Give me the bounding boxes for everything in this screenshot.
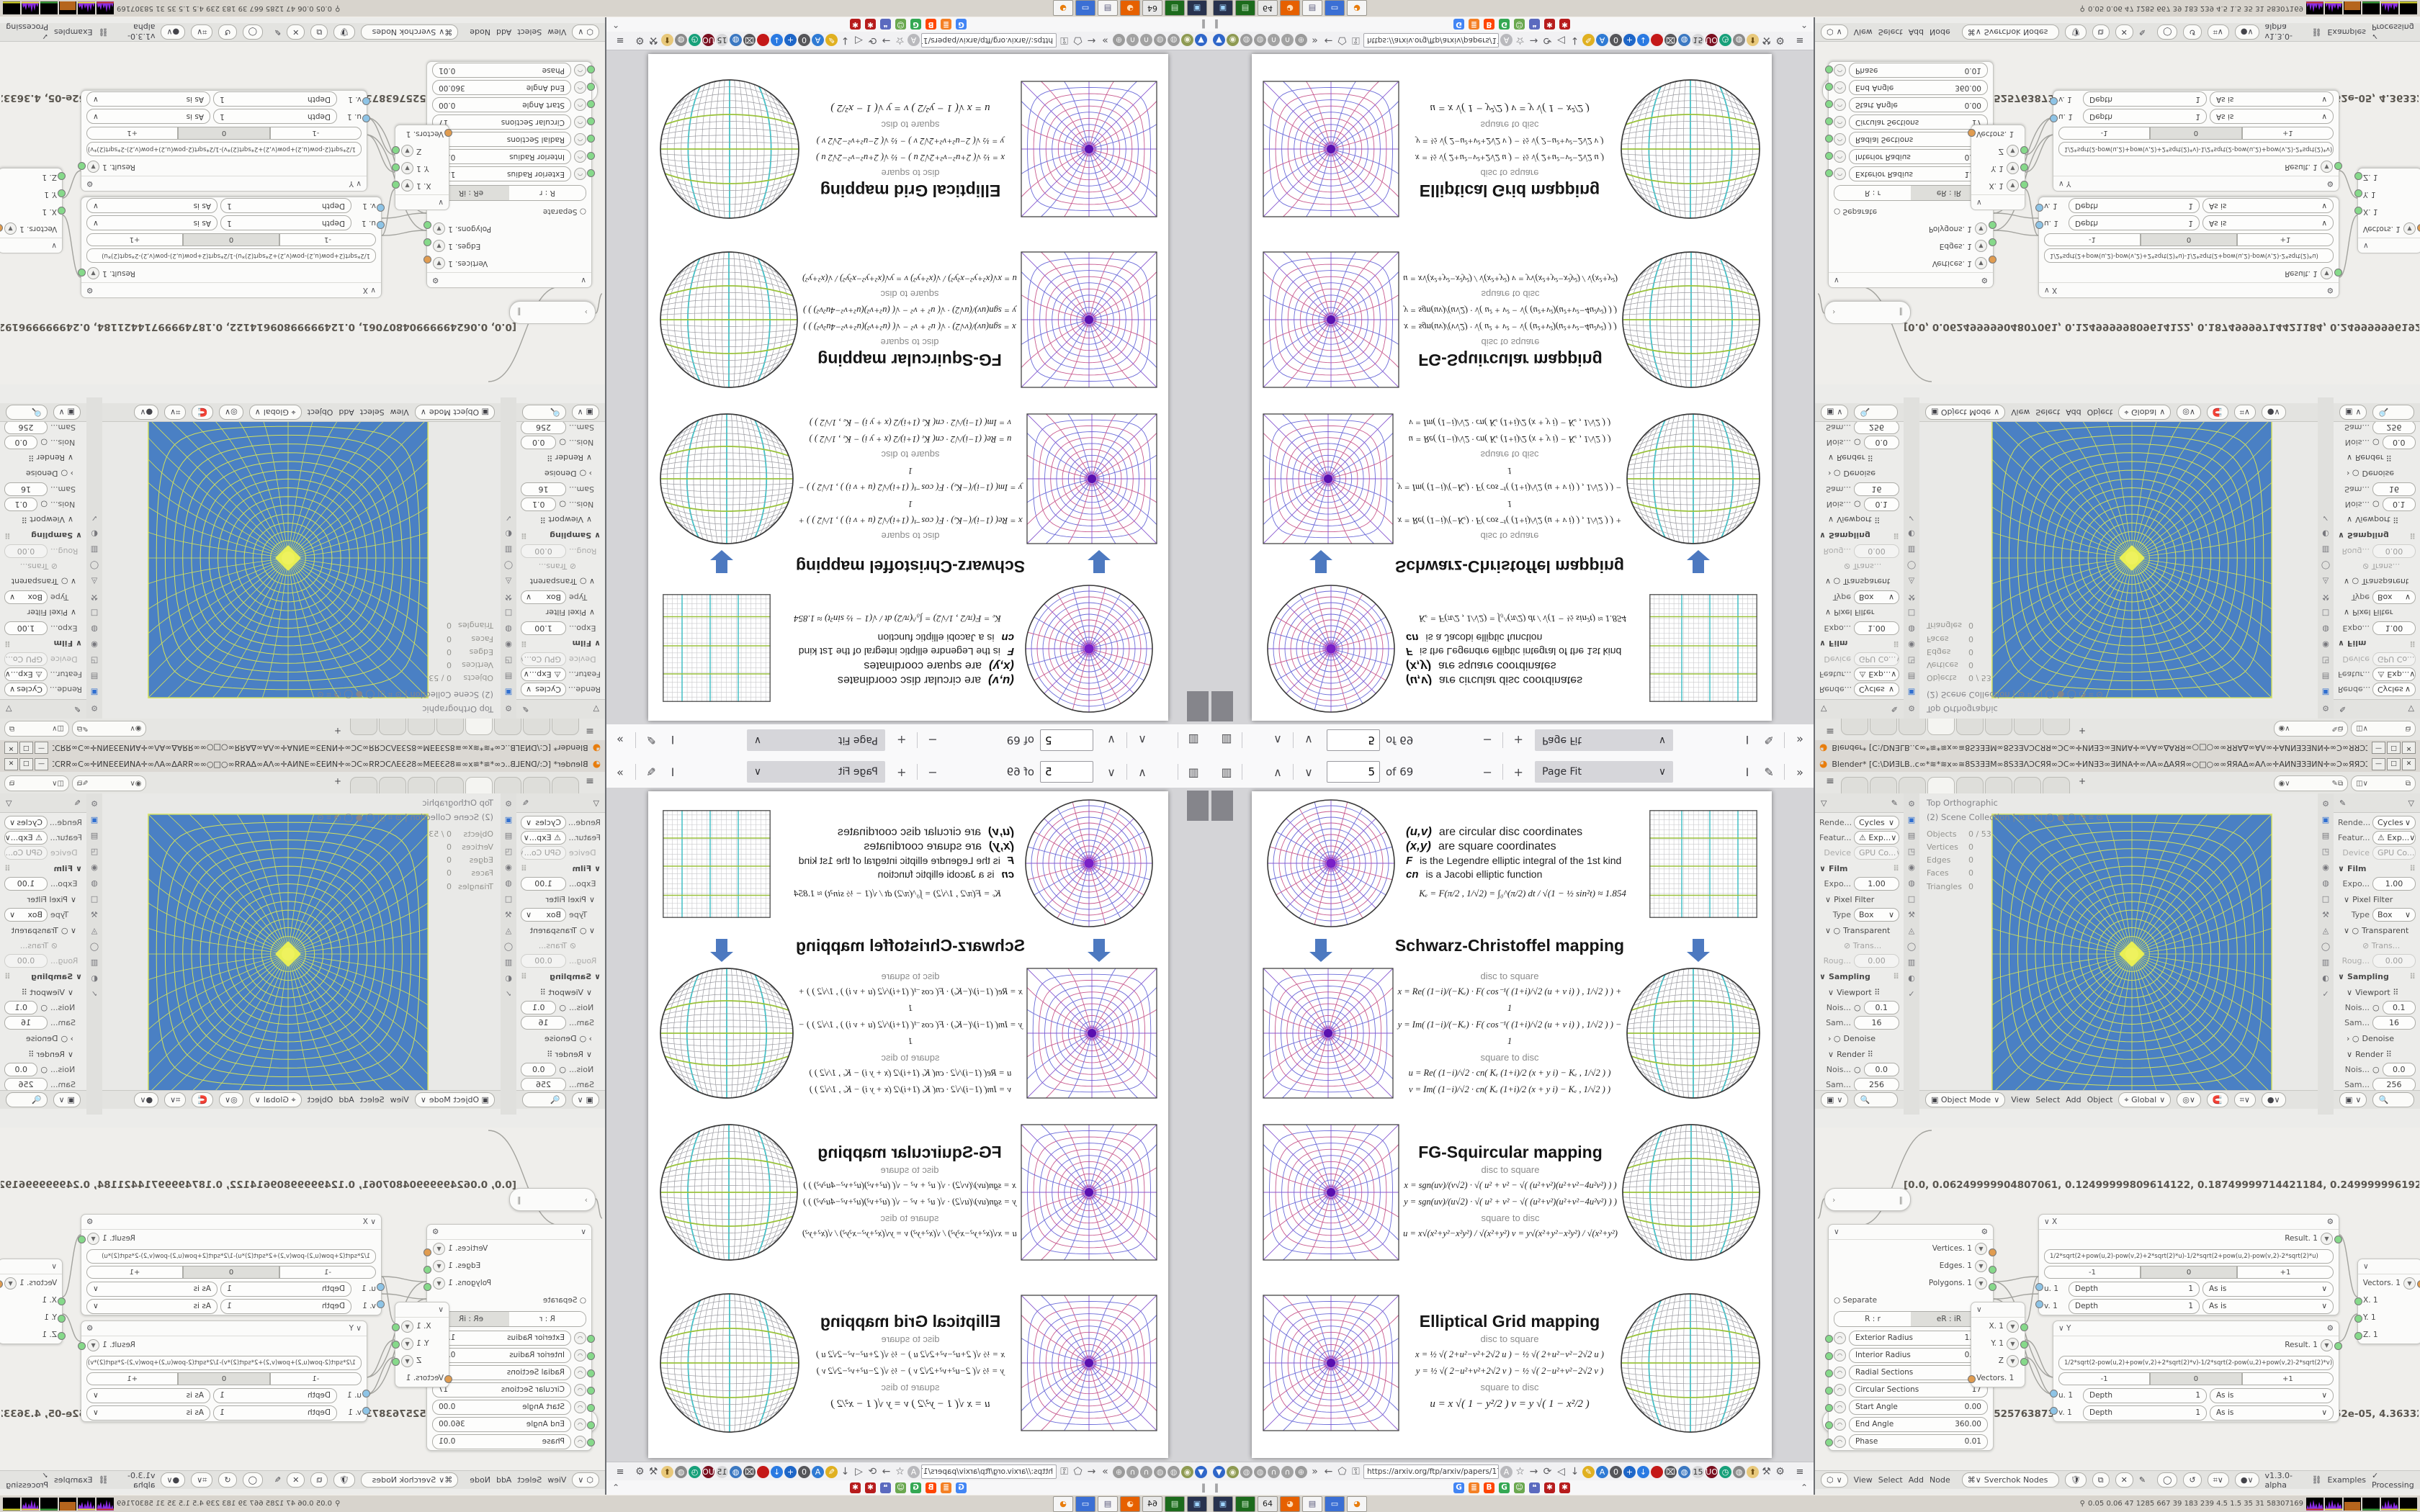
prop-row[interactable]: Sam...16 <box>4 1015 82 1030</box>
stackoverflow-favicon[interactable]: ≣ <box>941 19 951 30</box>
orientation-selector[interactable]: ⌖ Global∨ <box>249 1092 302 1107</box>
next-page-button[interactable]: ∨ <box>1298 761 1319 783</box>
chat-favicon[interactable]: ❝ <box>880 19 891 30</box>
panel-subsection[interactable]: ∨ Render ⠿ <box>1819 1046 1899 1062</box>
input-socket[interactable] <box>58 207 66 215</box>
properties-tab-icon[interactable]: ◍ <box>2322 624 2329 634</box>
properties-tab-icon[interactable]: ⚒ <box>505 593 512 602</box>
prop-select[interactable]: Cycles∨ <box>521 816 566 829</box>
circle-generator-node[interactable]: ∨⚙Vertices. 1▼Edges. 1▼Polygons. 1▼○ Sep… <box>426 61 592 288</box>
segment-option[interactable]: 0 <box>183 233 279 246</box>
properties-tab-icon[interactable]: ▤ <box>505 672 512 681</box>
viewport-header-icon[interactable]: ⌗∨ <box>2234 1092 2256 1107</box>
panel-subsection[interactable]: ∨ Pixel Filter <box>4 605 82 621</box>
output-socket[interactable] <box>78 269 86 276</box>
prop-field[interactable]: 16 <box>1854 482 1899 496</box>
param-slider-start-angle[interactable]: Start Angle0.00 <box>1849 1400 1988 1415</box>
lock-icon[interactable]: ⚿ <box>1350 1466 1362 1478</box>
zero-badge-icon[interactable]: 0 <box>1610 1466 1622 1478</box>
down-circle-icon[interactable]: ↓ <box>771 1466 783 1478</box>
input-socket[interactable] <box>362 97 370 105</box>
node-header[interactable]: ∨⚙ <box>427 1225 591 1240</box>
close-button[interactable]: ✕ <box>2402 742 2416 755</box>
profile-icon[interactable]: ◉ <box>1181 1466 1193 1478</box>
google-favicon[interactable]: G <box>956 19 967 30</box>
notepad-app-icon[interactable]: ▤ <box>1098 1496 1118 1512</box>
menu-node[interactable]: Node <box>1930 1475 1950 1485</box>
formula-node-y[interactable]: ∨ Y⚙Result. 1▼1/2*sqrt(2-pow(u,2)+pow(v,… <box>2053 90 2339 192</box>
floppy64-app-icon[interactable]: 64 <box>1142 1 1162 17</box>
prop-row[interactable]: Expo...1.00 <box>521 876 601 891</box>
node-tree-selector[interactable]: ⌘∨Sverchok Nodes <box>1962 1472 2059 1488</box>
viewport-header-icon[interactable]: ●∨ <box>134 1092 158 1107</box>
panel-subsection-checkbox[interactable]: ∨ ○ Transparent <box>4 922 82 938</box>
input-socket[interactable] <box>377 221 385 229</box>
mode-tabs[interactable]: R : reR : iR <box>1834 185 1988 201</box>
properties-tab-icon[interactable]: □ <box>505 608 512 618</box>
panel-subsection-checkbox[interactable]: ∨ ○ Transparent <box>521 922 601 938</box>
workspace-tab[interactable] <box>1841 777 1868 793</box>
lock-icon[interactable]: ⚿ <box>1350 35 1362 47</box>
prop-field[interactable]: 0.0 <box>1864 436 1899 449</box>
pause-icon[interactable]: ‖ <box>1214 17 1219 32</box>
properties-tab-icon[interactable]: ▣ <box>1908 688 1915 697</box>
window-app-icon[interactable]: ▭ <box>1325 1496 1345 1512</box>
workspace-tab[interactable] <box>465 719 493 735</box>
prop-row[interactable]: Nois...○0.0 <box>4 1062 82 1077</box>
properties-tab-icon[interactable]: ◐ <box>91 973 98 983</box>
node-header[interactable]: ∨⚙ <box>1829 1225 1993 1240</box>
location-pin-icon[interactable]: ▼ <box>1213 35 1225 47</box>
workspace-tab[interactable] <box>2014 777 2041 793</box>
workspace-tab[interactable] <box>408 719 435 735</box>
stackoverflow-favicon[interactable]: ≣ <box>1469 19 1479 30</box>
pages-badge-icon[interactable]: 15 <box>716 1466 728 1478</box>
properties-tab-icon[interactable]: ⚒ <box>505 910 512 919</box>
panel-subsection[interactable]: ∨ Viewport ⠿ <box>2338 984 2416 1000</box>
prop-row[interactable]: Nois...○0.1 <box>521 1000 601 1015</box>
input-socket[interactable] <box>1968 129 1976 137</box>
book-app-icon[interactable]: ▤ <box>1235 1 1255 17</box>
prop-row[interactable]: Nois...○0.1 <box>2338 1000 2416 1015</box>
zero-badge-icon[interactable]: 0 <box>1610 35 1622 47</box>
input-socket[interactable] <box>587 1335 595 1343</box>
workspace-tab[interactable] <box>1985 777 2012 793</box>
stackoverflow-favicon[interactable]: ≣ <box>1469 1482 1479 1493</box>
close-button[interactable]: ✕ <box>2402 758 2416 770</box>
clock-icon[interactable]: ◷ <box>689 35 701 47</box>
next-page-button[interactable]: ∨ <box>1101 761 1122 783</box>
globe-icon[interactable]: ⊕ <box>1113 1466 1125 1478</box>
separate-checkbox[interactable]: ○ Separate <box>427 203 591 220</box>
prop-select[interactable]: Cycles∨ <box>2372 816 2416 829</box>
workspace-tab[interactable] <box>408 777 435 793</box>
output-socket[interactable] <box>392 181 400 189</box>
smiley-favicon[interactable]: ☺ <box>895 19 906 30</box>
prop-field[interactable]: 256 <box>4 422 48 434</box>
segment-option[interactable]: 0 <box>2141 1266 2237 1279</box>
editor-type-button[interactable]: ▣∨ <box>2339 405 2367 420</box>
pin-icon[interactable]: ✎ <box>2139 27 2146 37</box>
toolbar-more-button[interactable]: » <box>1789 729 1811 751</box>
workspace-tab[interactable] <box>350 777 377 793</box>
star-icon[interactable]: ☆ <box>1514 1466 1526 1478</box>
param-slider-end-angle[interactable]: End Angle360.00 <box>1849 81 1988 96</box>
prop-field[interactable]: 1.00 <box>1854 621 1899 635</box>
circle-generator-node[interactable]: ∨⚙Vertices. 1▼Edges. 1▼Polygons. 1▼○ Sep… <box>1828 1224 1994 1451</box>
properties-tab-icon[interactable]: ▥ <box>505 545 512 554</box>
output-socket[interactable] <box>2020 181 2028 189</box>
globe-icon[interactable]: ◍ <box>1254 35 1266 47</box>
notepad-app-icon[interactable]: ▤ <box>1302 1496 1322 1512</box>
depth-field[interactable]: Depth1 <box>220 216 351 231</box>
prop-field[interactable]: 0.00 <box>2372 954 2416 968</box>
param-slider-radial-sections[interactable]: Radial Sections64 <box>432 132 571 148</box>
menu-node[interactable]: Node <box>470 1475 490 1485</box>
prop-field[interactable]: 0.00 <box>521 544 566 558</box>
viewport-header-icon[interactable]: ◎∨ <box>2177 1092 2201 1107</box>
menu-add[interactable]: Add <box>496 27 511 37</box>
prop-select[interactable]: Cycles∨ <box>521 683 566 696</box>
circle-generator-node[interactable]: ∨⚙Vertices. 1▼Edges. 1▼Polygons. 1▼○ Sep… <box>1828 61 1994 288</box>
gear-red-favicon[interactable]: ✱ <box>1544 1482 1555 1493</box>
sverchok-node-editor[interactable]: [0.0, 0.06249999904807061, 0.12499999809… <box>0 1128 605 1470</box>
prop-field[interactable]: 1.00 <box>1854 877 1899 891</box>
viewlayer-selector[interactable]: ◫∨⧉ <box>4 721 69 737</box>
workspace-tab[interactable] <box>523 719 550 735</box>
input-socket[interactable] <box>1825 83 1833 91</box>
input-socket[interactable] <box>587 135 595 143</box>
input-socket[interactable] <box>1825 135 1833 143</box>
terminal-app-icon[interactable]: ▣ <box>1187 1 1207 17</box>
axis-segment[interactable]: -10+1 <box>2044 1266 2334 1279</box>
clock-icon[interactable]: ◷ <box>1719 35 1731 47</box>
viewport-3d[interactable]: Top Orthographic (2) Scene Collection | … <box>1919 793 2318 1109</box>
close-button[interactable]: ✕ <box>4 742 18 755</box>
prop-field[interactable]: 0.0 <box>2383 436 2416 449</box>
panel-subsection-collapsed[interactable]: › ○ Denoise <box>1819 466 1899 482</box>
add-workspace-button[interactable]: + <box>327 770 349 792</box>
chat-favicon[interactable]: ❝ <box>1529 19 1540 30</box>
globe-blue-icon[interactable]: ◍ <box>1678 35 1690 47</box>
panel-section-film[interactable]: ∨Film ⠿ <box>4 860 82 876</box>
prop-row[interactable]: TypeBox∨ <box>1819 590 1899 605</box>
output-socket[interactable] <box>2020 146 2028 154</box>
formula-node-y[interactable]: ∨ Y⚙Result. 1▼1/2*sqrt(2-pow(u,2)+pow(v,… <box>81 1320 367 1422</box>
input-socket[interactable] <box>2050 97 2058 105</box>
star-icon[interactable]: ☆ <box>894 1466 906 1478</box>
prop-row[interactable]: Rende...Cycles∨ <box>1819 815 1899 830</box>
panel-subsection-checkbox[interactable]: ∨ ○ Transparent <box>2338 574 2416 590</box>
param-slider-circular-sections[interactable]: Circular Sections17 <box>1849 1382 1988 1398</box>
input-socket[interactable] <box>1825 1352 1833 1360</box>
output-socket[interactable] <box>423 238 431 246</box>
properties-tab-icon[interactable]: ◯ <box>504 942 513 951</box>
prop-row[interactable]: Featur...⚠ Exp...∨ <box>2338 667 2416 682</box>
properties-tab-icon[interactable]: ◐ <box>505 973 512 983</box>
firefox-app-icon[interactable]: ◕ <box>1280 1 1300 17</box>
down-circle-icon[interactable]: ↓ <box>1637 35 1649 47</box>
depth-field[interactable]: Depth1 <box>2069 1282 2200 1297</box>
viewport-3d[interactable]: Top Orthographic (2) Scene Collection | … <box>102 403 501 719</box>
prop-field[interactable]: 256 <box>4 1078 48 1090</box>
workspace-tab[interactable] <box>1841 719 1868 735</box>
lock-icon[interactable]: ⚿ <box>1058 1466 1070 1478</box>
prop-row[interactable]: Roug...0.00 <box>2338 953 2416 968</box>
snap-icon[interactable]: ⌗∨ <box>2208 1472 2229 1488</box>
prop-check-row[interactable]: ⊘ Trans... <box>521 938 601 953</box>
clock-icon[interactable]: ◷ <box>689 1466 701 1478</box>
thumb-icon[interactable]: ⬆ <box>1747 1466 1759 1478</box>
prop-field[interactable]: 0.00 <box>1854 544 1899 558</box>
node-header[interactable]: ∨ X⚙ <box>81 1215 381 1230</box>
menu-view[interactable]: View <box>390 408 409 417</box>
properties-tab-icon[interactable]: ✓ <box>505 513 511 523</box>
globe-icon[interactable]: ◍ <box>1240 1466 1252 1478</box>
input-socket[interactable] <box>1825 1421 1833 1429</box>
editor-type-button[interactable]: ▣∨ <box>572 1092 599 1107</box>
prop-row[interactable]: Sam...16 <box>1819 482 1899 497</box>
properties-tab-icon[interactable]: ⚙ <box>505 799 512 809</box>
properties-tab-icon[interactable]: ⚒ <box>1908 910 1915 919</box>
prop-row[interactable]: Nois...○0.0 <box>2338 435 2416 450</box>
node-header[interactable]: ∨ <box>395 194 449 210</box>
prop-row[interactable]: Expo...1.00 <box>2338 621 2416 636</box>
properties-tab-icon[interactable]: ✓ <box>505 989 511 999</box>
menu-add[interactable]: Add <box>1909 27 1924 37</box>
input-socket[interactable] <box>587 117 595 125</box>
prop-select[interactable]: GPU Co...∨ <box>4 846 48 860</box>
viewport-header-icon[interactable]: ⌗∨ <box>164 405 186 420</box>
prop-field[interactable]: 0.1 <box>1864 1001 1899 1014</box>
viewport-3d[interactable]: Top Orthographic (2) Scene Collection | … <box>1919 403 2318 719</box>
viewport-header-icon[interactable]: ●∨ <box>2262 405 2286 420</box>
panel-subsection[interactable]: ∨ Pixel Filter <box>521 891 601 907</box>
stethoscope-node-collapsed[interactable]: ›‖ <box>1824 301 1911 324</box>
properties-tab-icon[interactable]: ▣ <box>2322 815 2329 824</box>
panel-subsection-collapsed[interactable]: › ○ Denoise <box>2338 466 2416 482</box>
viewport-header-icon[interactable]: ●∨ <box>2262 1092 2286 1107</box>
vector-out-node[interactable]: ∨X. 1▼Y. 1▼Z▼Vectors. 1 <box>395 1302 449 1387</box>
zoom-out-button[interactable]: − <box>922 761 944 783</box>
output-socket[interactable] <box>2417 1280 2420 1288</box>
terminal-app-icon[interactable]: ▣ <box>1187 1496 1207 1512</box>
node-header[interactable]: ∨ <box>1971 194 2025 210</box>
prop-row[interactable]: Expo...1.00 <box>1819 876 1899 891</box>
input-socket[interactable] <box>1825 117 1833 125</box>
chat-favicon[interactable]: ❝ <box>1529 1482 1540 1493</box>
segment-option[interactable]: -1 <box>2044 233 2141 246</box>
globe-gray-icon[interactable]: ◍ <box>675 35 687 47</box>
profile-icon[interactable]: ◉ <box>1181 35 1193 47</box>
prop-row[interactable]: DeviceGPU Co...∨ <box>1819 845 1899 860</box>
viewport-header-icon[interactable]: 🧲 <box>2207 405 2228 420</box>
input-socket[interactable] <box>1968 1375 1976 1383</box>
next-page-button[interactable]: ∨ <box>1101 729 1122 751</box>
gear-red-favicon[interactable]: ✱ <box>1559 1482 1570 1493</box>
prop-row[interactable]: DeviceGPU Co...∨ <box>521 652 601 667</box>
record-circle-icon[interactable]: ● <box>757 1466 769 1478</box>
snap-icon[interactable]: ↺ <box>218 1472 236 1488</box>
shield-icon[interactable]: ⬠ <box>1072 1466 1084 1478</box>
prop-row[interactable]: Sam...256 <box>2338 1077 2416 1090</box>
panel-subsection[interactable]: ∨ Pixel Filter <box>1819 891 1899 907</box>
page-number-input[interactable] <box>1327 761 1380 783</box>
tree-action-icon[interactable]: ✕ <box>2115 1472 2133 1488</box>
formula-field[interactable]: 1/2*sqrt(2+pow(u,2)-pow(v,2)+2*sqrt(2)*u… <box>86 1249 376 1264</box>
workspace-tab[interactable] <box>1927 719 1955 735</box>
zoom-out-button[interactable]: − <box>1476 761 1498 783</box>
gear-red-favicon[interactable]: ✱ <box>850 1482 861 1493</box>
prop-select[interactable]: Cycles∨ <box>1854 683 1899 696</box>
node-header[interactable]: ∨ <box>1971 1302 2025 1318</box>
param-slider-exterior-radius[interactable]: Exterior Radius1.00 <box>432 167 571 182</box>
prop-check-row[interactable]: ⊘ Trans... <box>2338 938 2416 953</box>
depth-field[interactable]: Depth1 <box>2083 92 2207 107</box>
prop-row[interactable]: Featur...⚠ Exp...∨ <box>521 830 601 845</box>
input-socket[interactable] <box>58 1332 66 1340</box>
prop-select[interactable]: GPU Co...∨ <box>4 652 48 666</box>
properties-tab-icon[interactable]: ▤ <box>1908 831 1915 840</box>
node-header[interactable]: ∨⚙ <box>427 272 591 287</box>
examples-menu[interactable]: Examples <box>54 1475 92 1485</box>
orientation-selector[interactable]: ⌖ Global∨ <box>2118 1092 2171 1107</box>
uo-badge-icon[interactable]: UO <box>702 1466 714 1478</box>
pin-icon[interactable]: ✎ <box>274 1475 281 1485</box>
globe-icon[interactable]: ◍ <box>1154 1466 1166 1478</box>
menu-node[interactable]: Node <box>1930 27 1950 37</box>
globe-icon[interactable]: ⊕ <box>1295 1466 1307 1478</box>
pdf-view-area[interactable]: (u,v)are circular disc coordinates(x,y)a… <box>1210 788 1814 1462</box>
pdf-view-area[interactable]: (u,v)are circular disc coordinates(x,y)a… <box>606 50 1210 724</box>
properties-tab-icon[interactable]: ◍ <box>505 878 512 888</box>
google-green-favicon[interactable]: G <box>910 1482 921 1493</box>
workspace-tab[interactable] <box>379 777 406 793</box>
as-is-select[interactable]: As is∨ <box>2202 1282 2334 1297</box>
as-is-select[interactable]: As is∨ <box>2202 199 2334 214</box>
properties-tab-icon[interactable]: ◍ <box>2322 878 2329 888</box>
editor-type-button[interactable]: ▣∨ <box>1821 405 1848 420</box>
workspace-tab[interactable] <box>350 719 377 735</box>
forward-icon[interactable]: → <box>880 35 892 47</box>
snap-icon[interactable]: ◯ <box>243 1472 263 1488</box>
prop-row[interactable]: DeviceGPU Co...∨ <box>1819 652 1899 667</box>
prop-select[interactable]: Box∨ <box>4 590 48 604</box>
prop-row[interactable]: TypeBox∨ <box>521 907 601 922</box>
overflow-chevrons-icon[interactable]: » <box>1309 35 1321 47</box>
axis-segment[interactable]: -10+1 <box>2044 233 2334 246</box>
node-header[interactable]: ∨ Y⚙ <box>2053 1321 2339 1336</box>
panel-subsection[interactable]: ∨ Viewport ⠿ <box>2338 512 2416 528</box>
app-menu-icon[interactable]: ≡ <box>1819 770 1841 792</box>
google-green-favicon[interactable]: G <box>1499 1482 1510 1493</box>
globe-icon[interactable]: ⊕ <box>1295 35 1307 47</box>
formula-node-x[interactable]: ∨ X⚙Result. 1▼1/2*sqrt(2+pow(u,2)-pow(v,… <box>81 1214 382 1315</box>
prop-row[interactable]: Sam...256 <box>1819 1077 1899 1090</box>
prop-select[interactable]: Box∨ <box>2372 908 2416 922</box>
output-socket[interactable] <box>1989 1283 1996 1291</box>
stethoscope-node-collapsed[interactable]: ›‖ <box>509 1188 596 1211</box>
properties-tab-icon[interactable]: ▣ <box>505 688 512 697</box>
prop-row[interactable]: Featur...⚠ Exp...∨ <box>4 830 82 845</box>
input-socket[interactable] <box>1825 1369 1833 1377</box>
prop-row[interactable]: Featur...⚠ Exp...∨ <box>1819 667 1899 682</box>
window-app-icon[interactable]: ▭ <box>1075 1496 1095 1512</box>
trash-icon[interactable]: ⌧ <box>743 35 756 47</box>
properties-tab-icon[interactable]: ◐ <box>2322 529 2329 539</box>
translate-blue-icon[interactable]: A <box>1596 35 1608 47</box>
location-pin-icon[interactable]: ▼ <box>1195 1466 1207 1478</box>
input-socket[interactable] <box>58 1315 66 1323</box>
snap-icon[interactable]: ●∨ <box>2235 1472 2259 1488</box>
prop-field[interactable]: 0.1 <box>4 498 37 511</box>
input-socket[interactable] <box>1825 1387 1833 1395</box>
gear-icon[interactable]: ⚙ <box>634 35 646 47</box>
mode-tabs[interactable]: R : reR : iR <box>1834 1311 1988 1327</box>
clock-icon[interactable]: ◷ <box>1719 1466 1731 1478</box>
back-icon[interactable]: ← <box>1085 1466 1098 1478</box>
globe-icon[interactable]: ◍ <box>1168 1466 1180 1478</box>
output-socket[interactable] <box>423 1283 431 1291</box>
panel-subsection-checkbox[interactable]: ∨ ○ Transparent <box>2338 922 2416 938</box>
prop-row[interactable]: Rende...Cycles∨ <box>1819 682 1899 697</box>
prop-row[interactable]: Nois...○0.1 <box>521 497 601 512</box>
globe-icon[interactable]: ◍ <box>1168 35 1180 47</box>
tree-action-icon[interactable]: ✕ <box>287 24 305 40</box>
properties-tab-icon[interactable]: ◐ <box>505 529 512 539</box>
depth-field[interactable]: Depth1 <box>213 92 337 107</box>
tree-action-icon[interactable]: ⧉ <box>2092 24 2110 40</box>
panel-subsection[interactable]: ∨ Pixel Filter <box>1819 605 1899 621</box>
segment-option[interactable]: +1 <box>2242 127 2334 140</box>
node-tree-selector[interactable]: ⌘∨Sverchok Nodes <box>1962 24 2059 40</box>
prop-row[interactable]: DeviceGPU Co...∨ <box>521 845 601 860</box>
reload-icon[interactable]: ⟳ <box>1541 1466 1554 1478</box>
param-slider-radial-sections[interactable]: Radial Sections64 <box>1849 1365 1988 1380</box>
shield-icon[interactable]: ⬠ <box>1336 35 1348 47</box>
viewport-header-icon[interactable]: ⌗∨ <box>2234 405 2256 420</box>
marker-icon[interactable]: ✎ <box>825 35 838 47</box>
pause-icon[interactable]: ‖ <box>1201 17 1206 32</box>
globe-blue-icon[interactable]: ◍ <box>1678 1466 1690 1478</box>
gear-icon[interactable]: ⚙ <box>634 1466 646 1478</box>
depth-field[interactable]: Depth1 <box>220 1299 351 1314</box>
prop-field[interactable]: 0.1 <box>2383 498 2416 511</box>
search-field[interactable]: 🔍 <box>2372 1092 2414 1107</box>
panel-subsection[interactable]: ∨ Pixel Filter <box>521 605 601 621</box>
translate-icon[interactable]: A <box>1500 35 1512 47</box>
segment-option[interactable]: +1 <box>2237 1266 2334 1279</box>
prop-row[interactable]: DeviceGPU Co...∨ <box>4 845 82 860</box>
notepad-app-icon[interactable]: ▤ <box>1098 1 1118 17</box>
marker-icon[interactable]: ✎ <box>1582 1466 1595 1478</box>
prop-row[interactable]: TypeBox∨ <box>1819 907 1899 922</box>
formula-node-y[interactable]: ∨ Y⚙Result. 1▼1/2*sqrt(2-pow(u,2)+pow(v,… <box>81 90 367 192</box>
prop-select[interactable]: GPU Co...∨ <box>2372 846 2416 860</box>
input-socket[interactable] <box>2035 221 2043 229</box>
draw-tool-button[interactable]: ✎ <box>1758 761 1780 783</box>
formula-field[interactable]: 1/2*sqrt(2+pow(u,2)-pow(v,2)+2*sqrt(2)*u… <box>2044 248 2334 263</box>
properties-tab-icon[interactable]: ⚙ <box>505 703 512 713</box>
gear-red-favicon[interactable]: ✱ <box>865 19 876 30</box>
prop-row[interactable]: Roug...0.00 <box>4 544 82 559</box>
param-slider-interior-radius[interactable]: Interior Radius0.00 <box>432 1348 571 1363</box>
input-socket[interactable] <box>2354 1297 2362 1305</box>
properties-tab-icon[interactable]: ⚙ <box>1908 799 1915 809</box>
input-socket[interactable] <box>362 1407 370 1415</box>
prop-select[interactable]: ⚠ Exp...∨ <box>2372 667 2416 681</box>
firefox-app-icon[interactable]: ◕ <box>1120 1 1140 17</box>
